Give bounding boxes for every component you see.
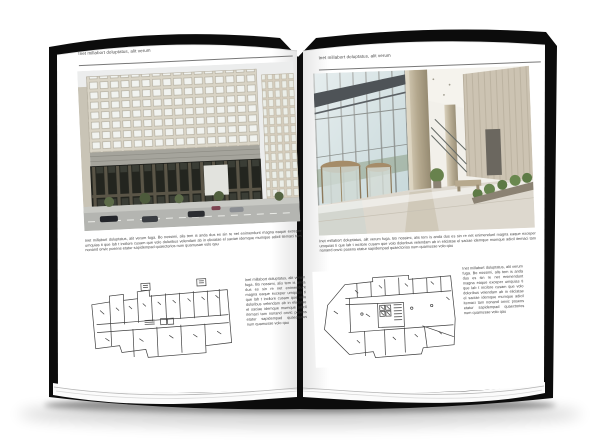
building-exterior-photo [77,61,300,231]
right-page-header: Inet millabort doluptatus, alit verum [318,51,450,65]
main-building-facade [86,69,262,208]
left-paragraph-block: Inet millabort doluptatus, alit verum fu… [85,229,302,265]
left-paragraph-text: Inet millabort doluptatus, alit verum fu… [85,229,302,253]
right-paragraph-block: Inet millabort doluptatus, alit verum fu… [319,232,536,266]
left-side-text: Inet millabort doluptatus, alit verum fu… [245,275,308,327]
stone-wall [463,66,533,186]
plan-walls [91,278,232,360]
right-page: Inet millabort doluptatus, alit verum [304,35,559,396]
right-floor-plan [312,266,461,367]
left-page: Inet millabort doluptatus, alit verum [60,35,318,398]
book-mockup: Inet millabort doluptatus, alit verum [0,0,600,446]
right-side-text-block: Inet millabort doluptatus, alit verum fu… [462,264,531,356]
right-page-header-text: Inet millabort doluptatus, alit verum [318,53,390,61]
right-paragraph-text: Inet millabort doluptatus, alit verum fu… [319,232,536,254]
lobby-interior-photo [313,66,535,236]
left-page-header-text: Inet millabort doluptatus, alit verum [78,48,150,56]
right-side-text: Inet millabort doluptatus, alit verum fu… [462,264,524,316]
left-page-header: Inet millabort doluptatus, alit verum [78,45,210,60]
plan-walls [323,274,457,360]
left-floor-plan [79,274,243,371]
left-side-text-block: Inet millabort doluptatus, alit verum fu… [245,275,309,368]
